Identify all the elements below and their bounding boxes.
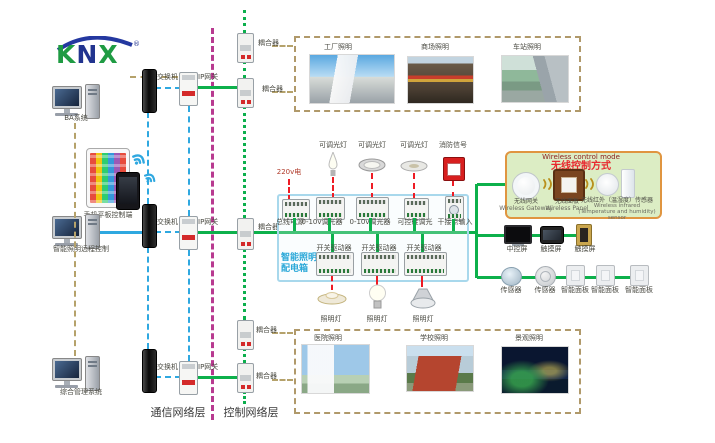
- knx-bus-line: [369, 218, 372, 231]
- knx-bus-line: [293, 218, 296, 231]
- coupler-label: 耦合器: [258, 40, 279, 48]
- touchscreen-label: 触摸屏: [541, 246, 562, 254]
- switch-label: 交换机: [157, 364, 178, 372]
- coupler-label: 耦合器: [256, 373, 277, 381]
- dimmable-lamp-label: 可调光灯: [358, 142, 386, 150]
- smartphone-device: [116, 172, 140, 210]
- module-label: 总线电源: [276, 219, 304, 227]
- fire-signal-label: 消防信号: [439, 142, 467, 150]
- network-switch: [142, 204, 157, 248]
- switch-actuator-module: [404, 252, 447, 276]
- factory-photo: [309, 54, 395, 104]
- monitor-icon: [52, 86, 82, 109]
- line-coupler-device: [237, 320, 254, 350]
- application-label: 学校照明: [420, 335, 448, 343]
- bus-power-module: [282, 199, 310, 220]
- lamp-label: 照明灯: [321, 316, 342, 324]
- wireless-sensor-remote-icon: [621, 169, 635, 198]
- lamp-label: 照明灯: [367, 316, 388, 324]
- thyristor-dimmer-module: [404, 198, 429, 220]
- mall-photo: [407, 56, 474, 104]
- switch-label: 交换机: [157, 74, 178, 82]
- smart-panel-label: 智能面板: [561, 287, 589, 295]
- knx-logo-text: KNX: [56, 42, 119, 67]
- lan-blue-line: [147, 112, 149, 204]
- ip-gateway-device: [179, 72, 198, 106]
- knx-bus-line: [562, 234, 577, 237]
- power-line: [288, 179, 290, 201]
- lan-blue-line: [155, 87, 181, 89]
- knx-bus-line: [196, 376, 240, 379]
- power-line: [413, 173, 415, 199]
- gateway-label: IP网关: [198, 74, 218, 82]
- knx-bus-line: [196, 231, 240, 234]
- application-label: 景观照明: [515, 335, 543, 343]
- smart-panel-icon: [596, 265, 615, 286]
- switch-actuator-module: [316, 252, 354, 276]
- knx-logo: KNX ®: [54, 36, 140, 70]
- line-coupler-device: [237, 33, 254, 63]
- sensor-icon: [535, 266, 556, 287]
- dimmer-module: [316, 197, 345, 220]
- power-line: [331, 276, 333, 290]
- highbay-lamp-icon: [407, 286, 439, 312]
- lamp-label: 照明灯: [413, 316, 434, 324]
- module-label: 0-10v调光器: [301, 219, 342, 227]
- power-line: [332, 177, 334, 199]
- knx-bus-line: [413, 218, 416, 231]
- station-photo: [501, 55, 569, 103]
- knx-bus-line: [452, 219, 455, 231]
- gateway-label: IP网关: [198, 364, 218, 372]
- control-layer-label: 控制网络层: [224, 404, 279, 420]
- application-label: 车站照明: [513, 44, 541, 52]
- fire-alarm-icon: [443, 157, 465, 181]
- knx-bus-line: [477, 276, 503, 279]
- application-label: 商场照明: [421, 44, 449, 52]
- candle-bulb-icon: [327, 152, 339, 177]
- school-photo: [406, 345, 474, 392]
- knx-system-diagram: KNX ® BA系统 手机平板控制端 智能照明远程控制 综合管理系统: [0, 0, 715, 443]
- central-screen-label: 中控屏: [507, 246, 528, 254]
- switch-actuator-module: [361, 252, 399, 276]
- knx-bus-line: [477, 234, 506, 237]
- smart-panel-label: 智能面板: [591, 287, 619, 295]
- distribution-box-name-2: 配电箱: [281, 261, 308, 274]
- wireless-sensor-icon: [596, 173, 619, 196]
- lan-blue-line: [155, 376, 181, 378]
- lan-blue-line: [188, 106, 190, 216]
- monitor-icon: [52, 216, 82, 239]
- lan-blue-line: [188, 250, 190, 361]
- application-label: 医院照明: [314, 335, 342, 343]
- central-screen-icon: [504, 225, 532, 244]
- signal-icon: [583, 178, 596, 190]
- smart-panel-icon: [630, 265, 649, 286]
- dial-icon: [449, 205, 459, 215]
- knx-bus-line: [475, 184, 478, 278]
- power-line: [371, 173, 373, 199]
- comm-layer-label: 通信网络层: [151, 404, 206, 420]
- knx-bus-line: [583, 276, 597, 279]
- network-switch: [142, 349, 157, 393]
- ba-system-label: BA系统: [64, 115, 88, 123]
- tower-icon: [85, 214, 100, 249]
- module-label: 干接点输入: [438, 219, 473, 227]
- tan-dashed-link: [74, 123, 76, 356]
- hospital-photo: [301, 344, 370, 394]
- lighting-remote-label: 智能照明远程控制: [53, 246, 109, 254]
- sensor-label: 传感器: [535, 287, 556, 295]
- switch-label: 交换机: [157, 219, 178, 227]
- wireless-sensor-label-en: Wireless infrared (Temperature and humid…: [578, 204, 656, 221]
- bus-dotted-line: [243, 348, 246, 363]
- knx-bus-line: [520, 276, 536, 279]
- ip-gateway-device: [179, 216, 198, 250]
- management-system-label: 综合管理系统: [60, 389, 102, 397]
- line-coupler-device: [237, 363, 254, 393]
- downlight-icon: [358, 158, 386, 172]
- tower-icon: [85, 356, 100, 391]
- coupler-label: 耦合器: [256, 327, 277, 335]
- ceiling-lamp-icon: [317, 289, 347, 305]
- gateway-label: IP网关: [198, 219, 218, 227]
- ip-gateway-device: [179, 361, 198, 395]
- bus-dotted-line: [243, 10, 246, 33]
- knx-bus-line: [613, 276, 631, 279]
- dimmer-module: [356, 197, 389, 220]
- bus-dotted-line: [243, 61, 246, 78]
- knx-bus-line: [328, 218, 331, 231]
- smart-panel-label: 智能面板: [625, 287, 653, 295]
- lan-blue-line: [100, 231, 144, 234]
- knx-bus-line: [196, 86, 240, 89]
- bus-dotted-line: [243, 248, 246, 320]
- management-computer: [52, 356, 100, 392]
- dimmable-lamp-label: 可调光灯: [400, 142, 428, 150]
- application-label: 工厂照明: [324, 44, 352, 52]
- wireless-gateway-icon: [512, 172, 540, 200]
- touchscreen-icon: [540, 226, 564, 244]
- bulb-lamp-icon: [369, 284, 386, 311]
- ceiling-light-icon: [400, 160, 428, 172]
- coupler-label: 耦合器: [262, 86, 283, 94]
- registered-mark: ®: [133, 40, 140, 48]
- network-switch: [142, 69, 157, 113]
- lan-blue-line: [155, 231, 181, 233]
- touchscreen-icon: [576, 224, 592, 246]
- dimmable-lamp-label: 可调光灯: [319, 142, 347, 150]
- sensor-icon: [501, 267, 522, 286]
- line-coupler-device: [237, 78, 254, 108]
- landscape-photo: [501, 346, 569, 394]
- smart-panel-icon: [566, 265, 585, 286]
- sensor-label: 传感器: [501, 287, 522, 295]
- monitor-icon: [52, 358, 82, 381]
- touchscreen-label: 触摸屏: [575, 246, 596, 254]
- line-coupler-device: [237, 218, 254, 250]
- lan-blue-line: [147, 247, 149, 349]
- bus-dotted-line: [243, 106, 246, 218]
- power-input-label: 220v电: [277, 169, 302, 177]
